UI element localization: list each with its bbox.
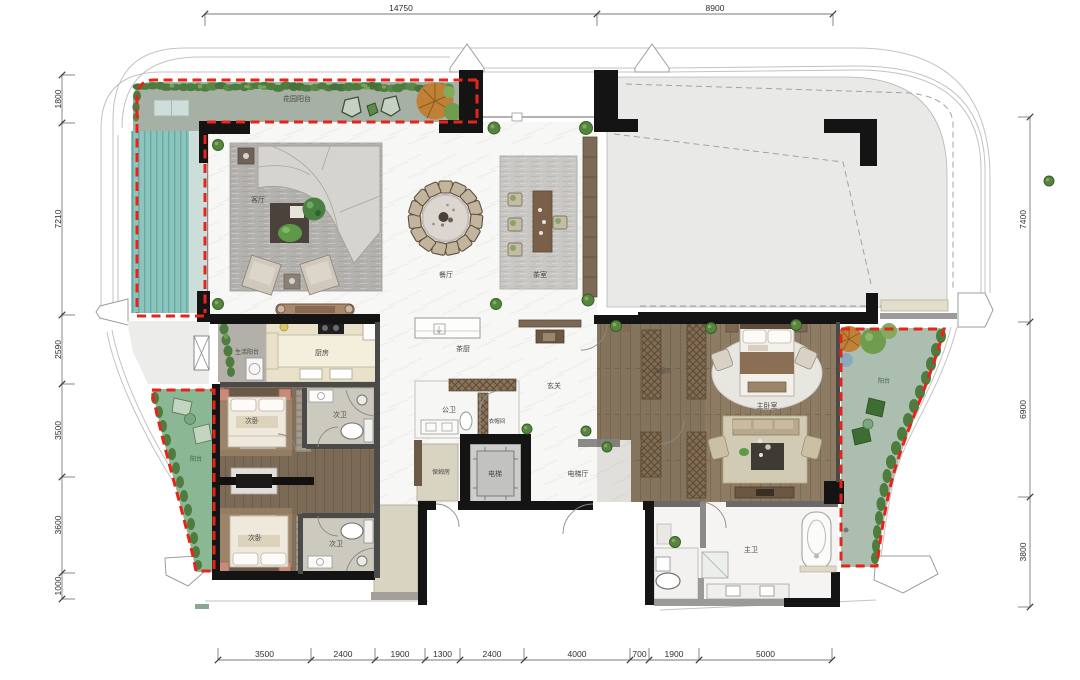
svg-text:保姆房: 保姆房	[432, 468, 450, 476]
svg-text:次卧: 次卧	[248, 533, 262, 542]
svg-text:主卫: 主卫	[744, 545, 758, 554]
svg-text:6900: 6900	[1018, 400, 1028, 419]
svg-text:7400: 7400	[1018, 210, 1028, 229]
svg-text:阳台: 阳台	[878, 377, 890, 385]
svg-text:茶室: 茶室	[533, 270, 547, 279]
svg-text:公卫: 公卫	[442, 406, 456, 414]
svg-text:3500: 3500	[53, 421, 63, 440]
svg-text:1900: 1900	[391, 649, 410, 659]
svg-text:1000: 1000	[53, 576, 63, 595]
svg-text:次卫: 次卫	[329, 539, 343, 548]
svg-text:餐厅: 餐厅	[439, 270, 453, 279]
svg-text:1900: 1900	[665, 649, 684, 659]
svg-text:2400: 2400	[483, 649, 502, 659]
svg-text:5000: 5000	[756, 649, 775, 659]
svg-text:7210: 7210	[53, 209, 63, 228]
svg-text:电梯厅: 电梯厅	[568, 469, 589, 478]
svg-text:4000: 4000	[568, 649, 587, 659]
svg-text:厨房: 厨房	[315, 348, 329, 357]
svg-text:1300: 1300	[433, 649, 452, 659]
svg-text:700: 700	[632, 649, 646, 659]
svg-text:2590: 2590	[53, 340, 63, 359]
svg-text:衣帽间: 衣帽间	[489, 417, 506, 425]
svg-text:茶厨: 茶厨	[456, 344, 470, 353]
svg-text:花园阳台: 花园阳台	[283, 94, 311, 103]
svg-text:3800: 3800	[1018, 542, 1028, 561]
svg-text:电梯: 电梯	[488, 469, 502, 478]
svg-text:3500: 3500	[255, 649, 274, 659]
svg-text:客厅: 客厅	[251, 195, 265, 204]
svg-text:主卧室: 主卧室	[757, 401, 778, 410]
svg-text:2400: 2400	[334, 649, 353, 659]
svg-text:14750: 14750	[389, 3, 413, 13]
svg-text:次卧: 次卧	[245, 416, 259, 425]
svg-text:1800: 1800	[53, 89, 63, 108]
svg-text:玄关: 玄关	[547, 381, 561, 390]
svg-text:8900: 8900	[706, 3, 725, 13]
svg-text:阳台: 阳台	[190, 455, 202, 463]
svg-text:衣帽间: 衣帽间	[653, 367, 671, 375]
svg-text:生活阳台: 生活阳台	[235, 348, 259, 356]
svg-text:次卫: 次卫	[333, 410, 347, 419]
svg-text:3600: 3600	[53, 515, 63, 534]
